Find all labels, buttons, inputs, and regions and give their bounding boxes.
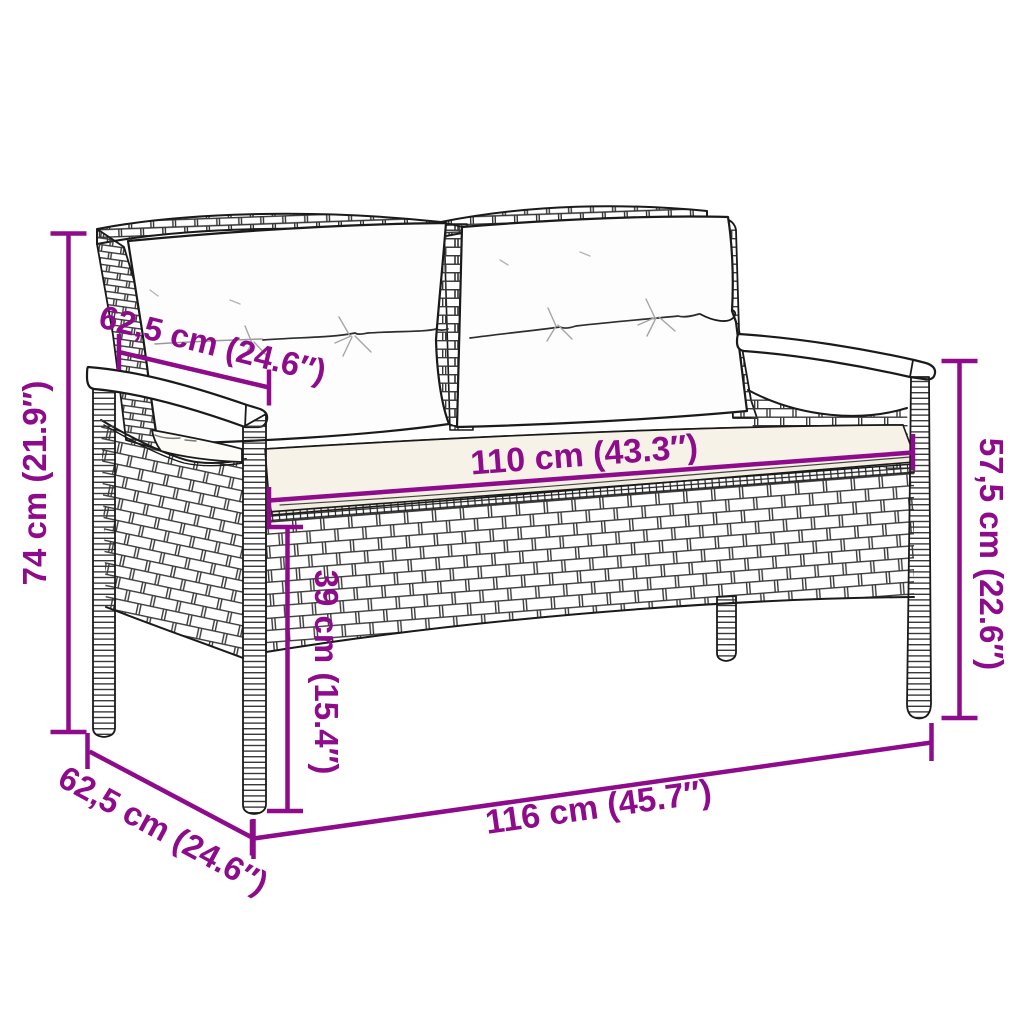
svg-text:39 cm (15.4″): 39 cm (15.4″) <box>308 570 345 775</box>
svg-text:57,5 cm (22.6″): 57,5 cm (22.6″) <box>973 438 1010 670</box>
svg-text:74 cm (21.9″): 74 cm (21.9″) <box>16 381 53 586</box>
